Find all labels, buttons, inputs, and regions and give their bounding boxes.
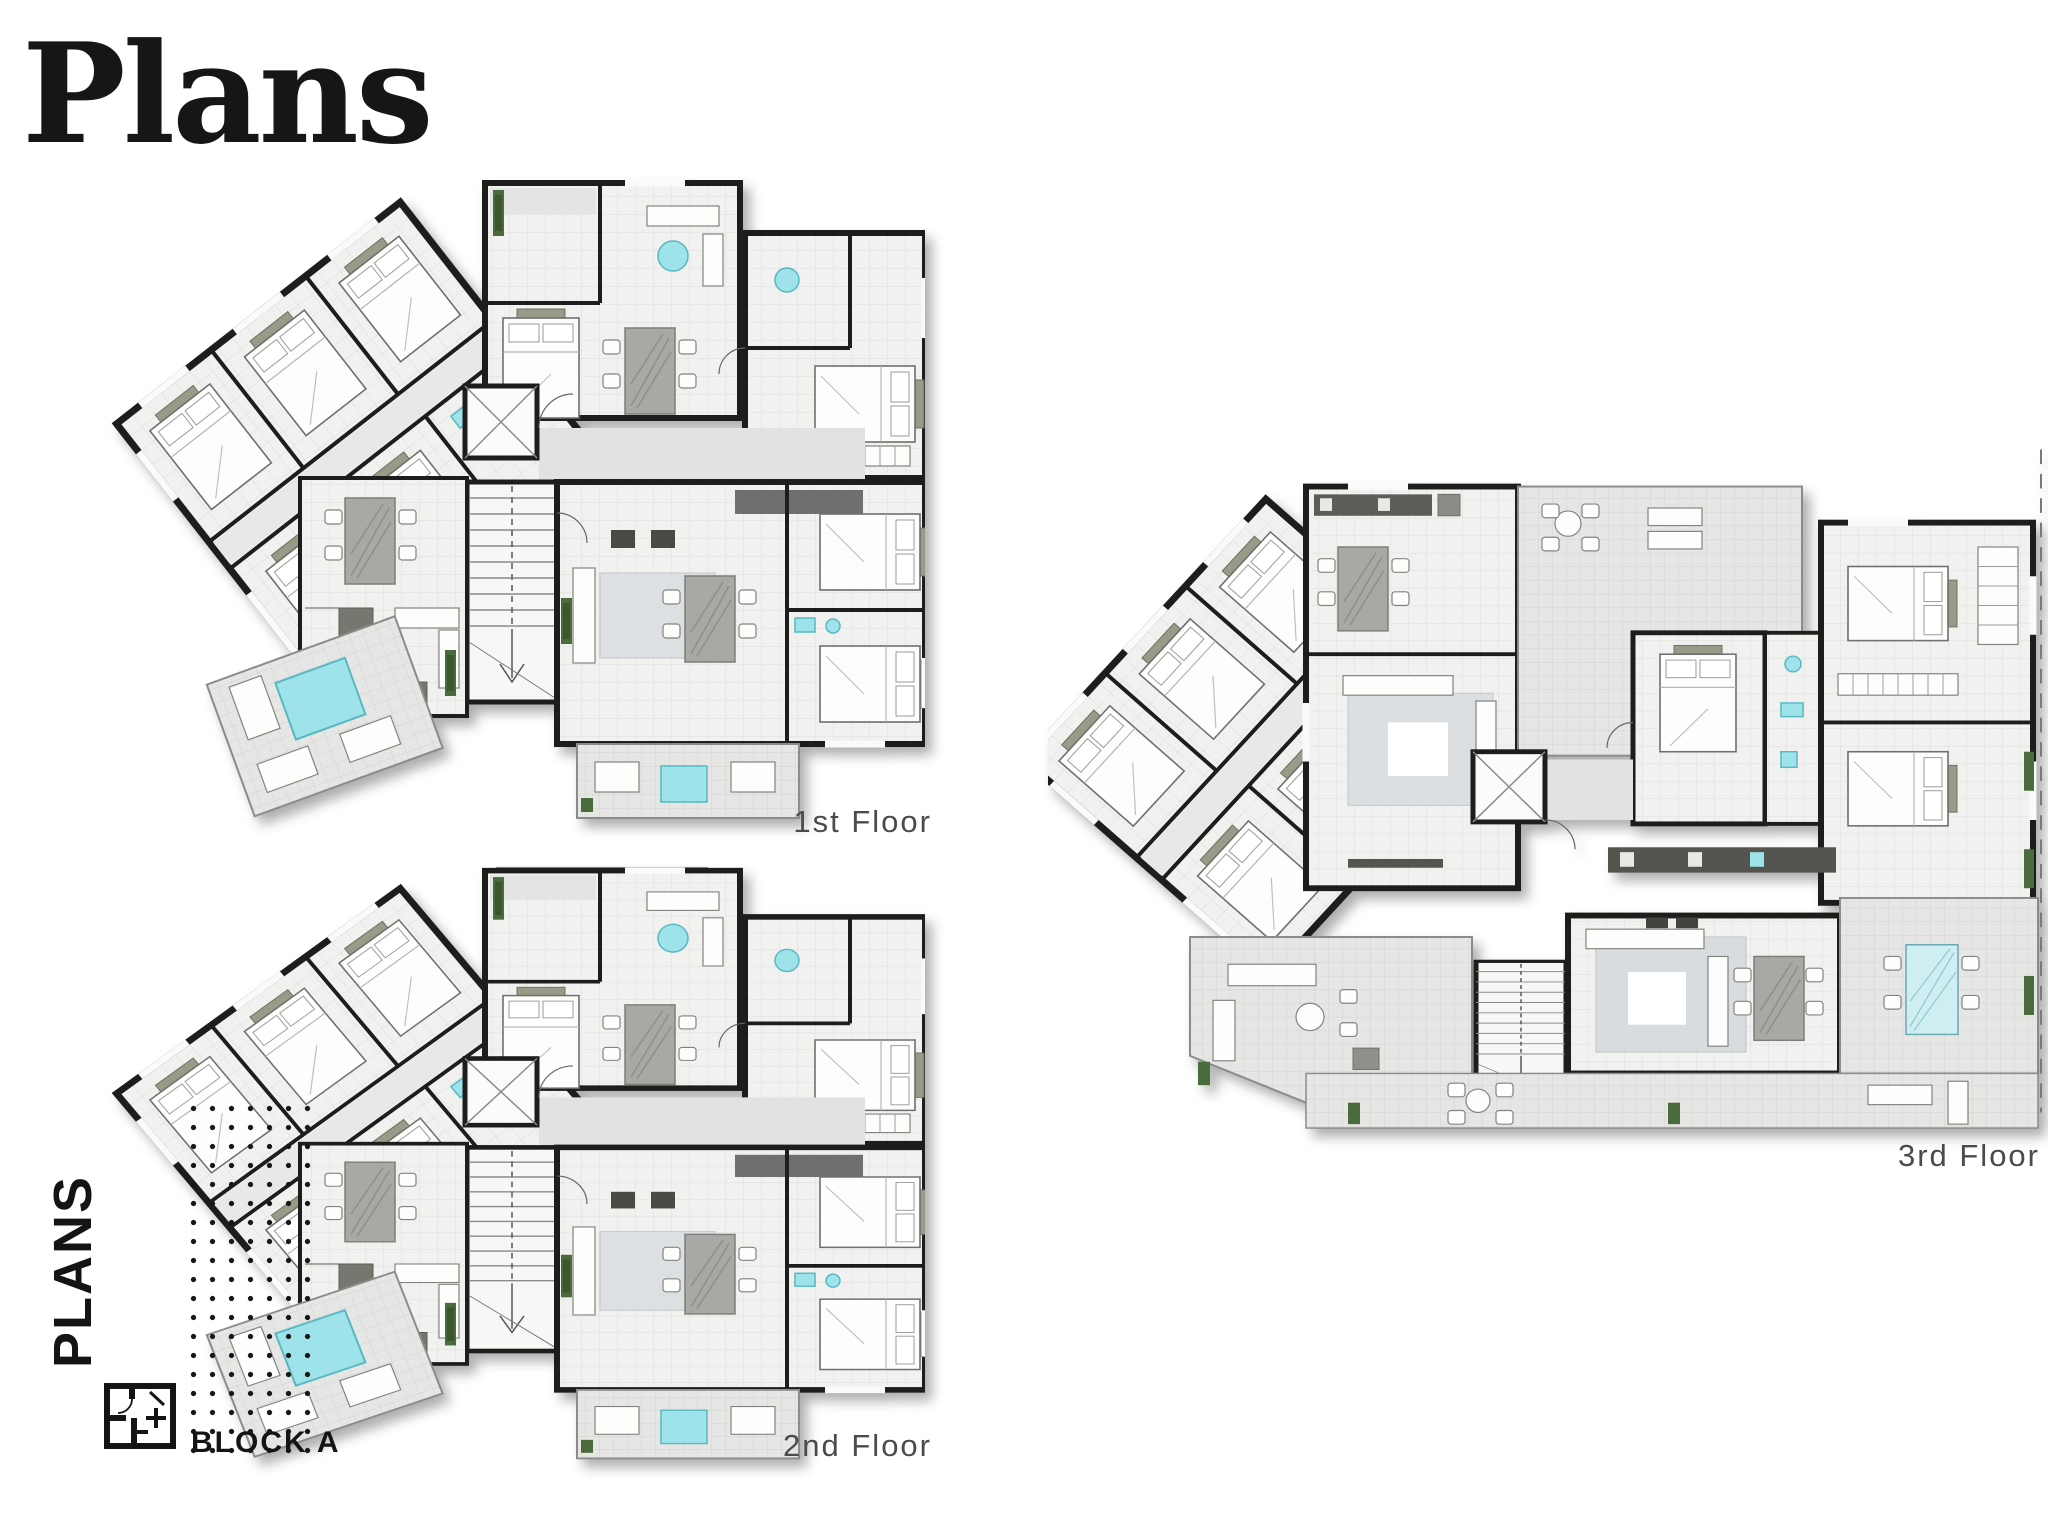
planter [2024,849,2034,888]
vertical-plans-label-wrap: PLANS [102,1192,168,1368]
floor-label-1st: 1st Floor [700,804,932,840]
floor-plan-3rd [1048,430,2048,1130]
page-title: Plans [22,22,431,167]
kitchen-counter [1608,847,1836,872]
planter [2024,752,2034,791]
floor-plan-icon [103,1382,177,1450]
block-branding: BLOCK A [103,1382,423,1456]
vertical-plans-label: PLANS [42,1175,104,1368]
elevator [1473,752,1545,822]
terrace-bottom-band [1306,1073,2038,1128]
bedrooms-right [1821,523,2033,903]
bathroom-strip [1765,633,1821,824]
plans-brochure-page: Plans 1st Floor 2nd Floor [0,0,2048,1536]
apartment-living-kitchen [1306,487,1518,889]
living-room-penthouse [1568,916,1840,1074]
block-label: BLOCK A [191,1426,341,1460]
terrace-right-dining [1840,898,2038,1073]
bedroom-middle [1633,633,1765,824]
floor-plan-2nd [95,866,925,1463]
floor-label-3rd: 3rd Floor [1800,1138,2040,1174]
floor-label-2nd: 2nd Floor [700,1428,932,1464]
corridor [1545,760,1633,820]
planter [2024,976,2034,1015]
floor-plan-1st [95,178,925,823]
